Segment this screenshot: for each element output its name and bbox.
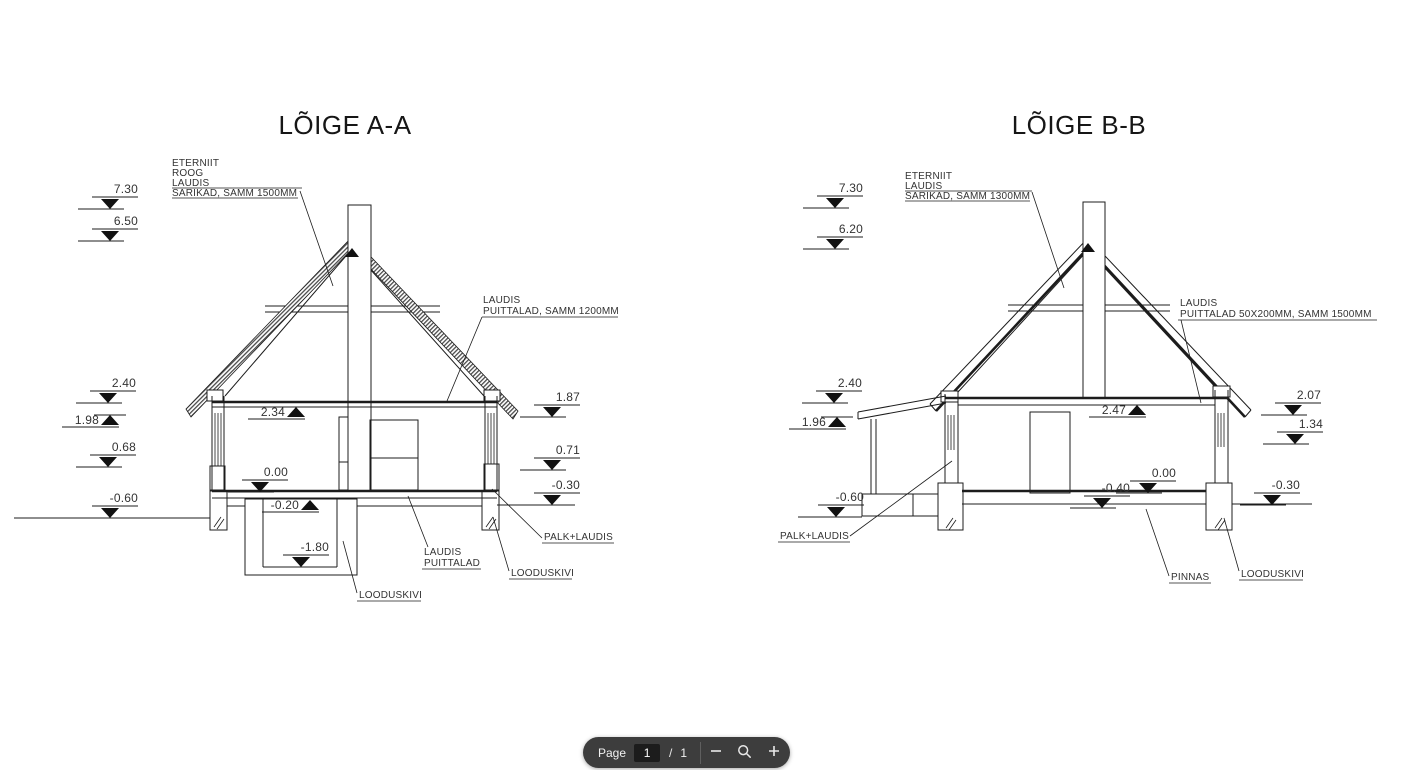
elevation-value: 1.34 xyxy=(1299,417,1323,431)
annotation-label: PUITTALAD xyxy=(424,558,480,569)
elevation-value: -0.60 xyxy=(836,490,864,504)
annotation-label: LOODUSKIVI xyxy=(359,590,422,601)
annotation-label: SARIKAD, SAMM 1500MM xyxy=(172,188,297,199)
porch-base-bb xyxy=(862,494,913,516)
elevation-value: -1.80 xyxy=(301,540,329,554)
stove-aa xyxy=(370,420,418,490)
elevation-value: 7.30 xyxy=(114,182,138,196)
elevation-value: -0.30 xyxy=(1272,478,1300,492)
elevation-value: 0.00 xyxy=(1152,466,1176,480)
zoom-tool-button[interactable] xyxy=(730,737,759,768)
page-label: Page xyxy=(598,746,626,760)
annotation-label: PALK+LAUDIS xyxy=(780,531,849,542)
elevation-value: -0.20 xyxy=(271,498,299,512)
annotation-label: LAUDIS xyxy=(1180,298,1217,309)
elevation-value: 2.47 xyxy=(1102,403,1126,417)
elevation-value: 2.40 xyxy=(838,376,862,390)
elevation-value: 1.98 xyxy=(75,413,99,427)
section-bb-text: LÕIGE B-B ETERNIIT LAUDIS SARIKAD, SAMM … xyxy=(780,110,1372,583)
elevation-value: -0.60 xyxy=(110,491,138,505)
section-bb-marker-arrows xyxy=(825,198,1304,517)
annotation-label: SARIKAD, SAMM 1300MM xyxy=(905,191,1030,202)
section-bb-drawing: LÕIGE B-B ETERNIIT LAUDIS SARIKAD, SAMM … xyxy=(778,110,1377,583)
plus-icon xyxy=(767,744,781,761)
page-total: 1 xyxy=(680,746,687,760)
elevation-value: 6.50 xyxy=(114,214,138,228)
section-title: LÕIGE B-B xyxy=(1012,110,1147,140)
elevation-value: -0.40 xyxy=(1102,481,1130,495)
elevation-value: 7.30 xyxy=(839,181,863,195)
page-separator: / xyxy=(669,746,672,760)
elevation-value: 1.87 xyxy=(556,390,580,404)
annotation-label: LAUDIS xyxy=(424,547,461,558)
annotation-label: PALK+LAUDIS xyxy=(544,532,613,543)
page-input[interactable] xyxy=(634,744,660,762)
minus-icon xyxy=(709,744,723,761)
annotation-label: LOODUSKIVI xyxy=(1241,569,1304,580)
annotation-label: PUITTALAD, SAMM 1200MM xyxy=(483,306,619,317)
pdf-canvas: LÕIGE A-A ETERNIIT ROOG LAUDIS SARIKAD, … xyxy=(0,0,1403,770)
elevation-value: 1.96 xyxy=(802,415,826,429)
elevation-value: 0.00 xyxy=(264,465,288,479)
elevation-value: 6.20 xyxy=(839,222,863,236)
zoom-in-button[interactable] xyxy=(759,737,788,768)
annotation-label: LOODUSKIVI xyxy=(511,568,574,579)
elevation-value: 0.68 xyxy=(112,440,136,454)
door-bb xyxy=(1030,412,1070,493)
annotation-label: PUITTALAD 50X200MM, SAMM 1500MM xyxy=(1180,309,1372,320)
elevation-value: 2.34 xyxy=(261,405,285,419)
section-title: LÕIGE A-A xyxy=(278,110,411,140)
chimney-aa xyxy=(348,205,371,491)
chimney-bb xyxy=(1083,202,1105,398)
section-bb-linework xyxy=(778,191,1377,583)
pdf-toolbar: Page / 1 xyxy=(583,737,790,768)
zoom-out-button[interactable] xyxy=(701,737,730,768)
section-aa-text: LÕIGE A-A ETERNIIT ROOG LAUDIS SARIKAD, … xyxy=(75,110,619,601)
annotation-label: PINNAS xyxy=(1171,572,1210,583)
magnifier-icon xyxy=(737,744,752,762)
section-aa-drawing: LÕIGE A-A ETERNIIT ROOG LAUDIS SARIKAD, … xyxy=(14,110,619,601)
elevation-value: 0.71 xyxy=(556,443,580,457)
elevation-value: 2.07 xyxy=(1297,388,1321,402)
annotation-label: LAUDIS xyxy=(483,295,520,306)
elevation-value: -0.30 xyxy=(552,478,580,492)
elevation-value: 2.40 xyxy=(112,376,136,390)
